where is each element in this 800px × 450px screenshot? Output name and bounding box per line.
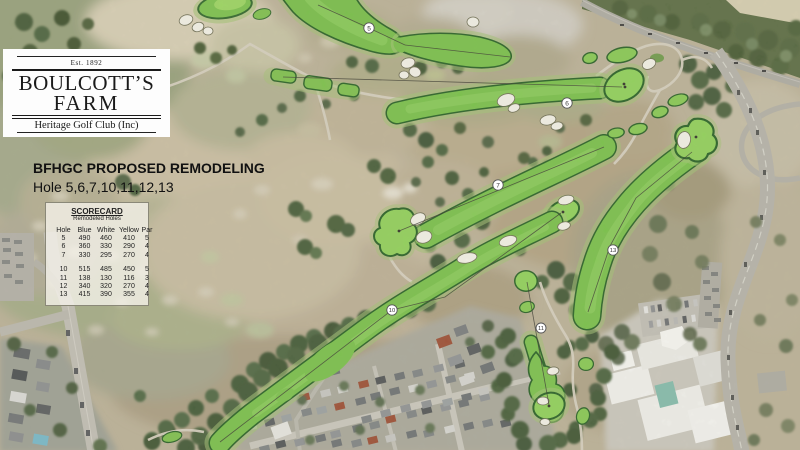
svg-text:7: 7 bbox=[496, 182, 500, 189]
svg-text:10: 10 bbox=[389, 307, 395, 314]
svg-text:13: 13 bbox=[610, 247, 616, 254]
svg-text:5: 5 bbox=[367, 25, 371, 32]
svg-text:6: 6 bbox=[565, 100, 569, 107]
svg-text:11: 11 bbox=[538, 326, 544, 332]
